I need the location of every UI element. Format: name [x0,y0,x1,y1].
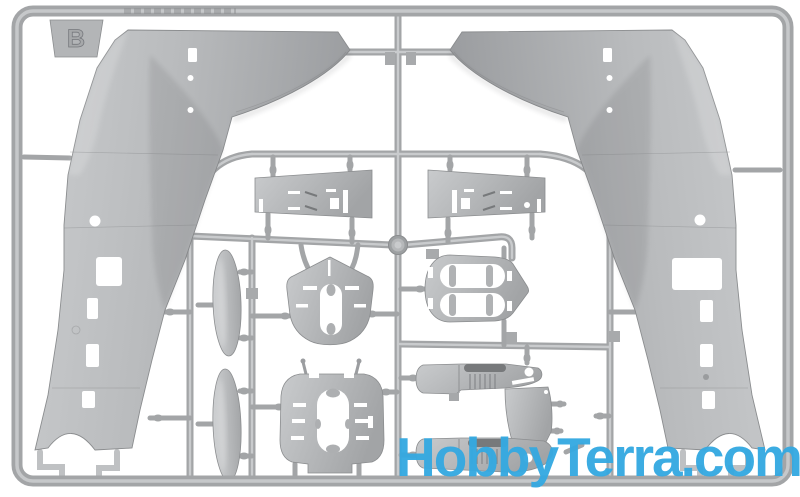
cabin-bulkhead [280,359,384,474]
floor-panel-left [255,170,372,218]
product-photo: B HobbyTerra.com [0,0,800,497]
window-cutout [700,344,713,367]
window-cutout [702,391,715,409]
gate-arm [301,245,308,268]
runner-block [406,52,416,65]
deck-tab [449,393,459,401]
floor-panel-right [428,170,545,218]
gate-arm [352,245,358,268]
window-cutout [87,298,98,319]
door-silhouette [211,250,243,357]
bulkhead-pins [303,362,359,374]
peg [327,323,336,335]
peg [326,389,340,398]
pin-tip [357,359,362,364]
runner-block [505,332,517,344]
peg [327,284,336,296]
hole-cutout [188,107,194,113]
runner-block [246,288,258,299]
hole-cutout [607,75,613,81]
firewall-bulkhead [287,257,374,345]
hole-cutout [544,390,548,394]
canopy-frame [425,255,529,322]
dark-opening [464,364,506,372]
hole-cutout [525,368,534,377]
window-cutout [86,344,99,367]
runner-block [426,249,439,259]
sprue-photo: B HobbyTerra.com [0,0,800,497]
molded-detail [703,374,709,380]
peg [326,445,340,454]
peg [345,419,351,429]
runner-block [385,52,395,65]
oval-cutout [317,389,349,453]
runner-hub [388,235,408,255]
watermark-text: HobbyTerra.com [396,426,800,488]
porthole-cutout [90,216,101,227]
door-cutout [672,258,722,290]
door-cutout [96,257,122,286]
pin-tip [301,359,306,364]
hole-cutout [607,107,613,113]
hole-cutout [188,75,194,81]
peg [315,419,321,429]
window-cutout [700,300,713,322]
runner-block [609,331,620,342]
gate-stub [24,157,70,158]
window-cutout [188,48,197,62]
window-cutout [603,48,612,62]
window-cutout [82,391,95,408]
wheel-door-lower [211,369,243,482]
sprue-letter-text: B [67,25,85,53]
door-silhouette [211,369,243,482]
porthole-cutout [695,215,706,226]
wheel-door-upper [211,250,243,357]
